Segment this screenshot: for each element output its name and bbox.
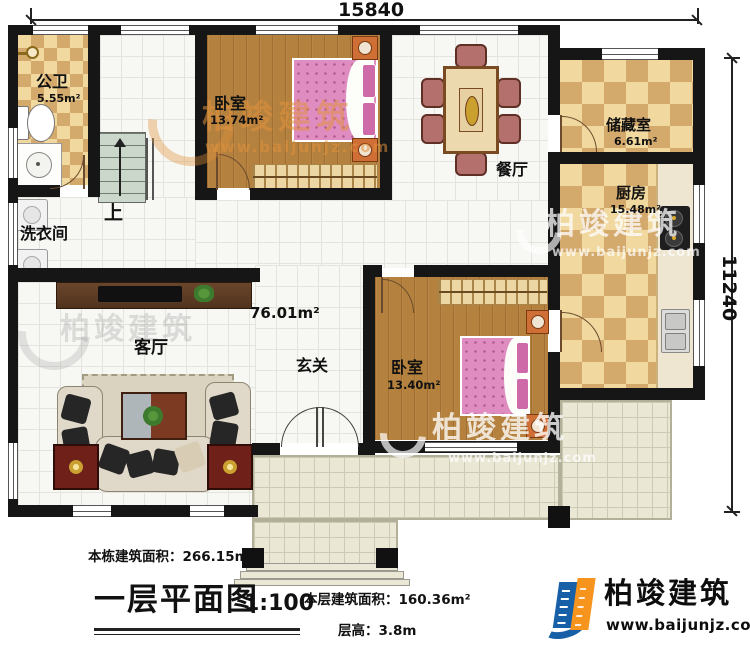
stair-handrail — [146, 138, 154, 200]
toilet-icon — [27, 104, 55, 142]
kitchen-label: 厨房 — [616, 186, 646, 201]
bedroom2-area: 13.40m² — [387, 380, 440, 392]
bedroom2-nightstand-1 — [526, 310, 549, 334]
dimension-ext — [697, 8, 699, 24]
wall-living-north — [8, 268, 260, 282]
side-table-medallion — [223, 460, 237, 474]
title-underline-thick — [94, 628, 300, 631]
floor-area-label: 本层建筑面积：160.36m² — [304, 594, 471, 608]
brand-logo-icon — [536, 576, 600, 642]
window-laundry-left — [8, 203, 18, 265]
wall-foyer-bottom-a — [252, 443, 280, 455]
storage-area: 6.61m² — [614, 136, 657, 147]
sink-basin-2 — [665, 333, 686, 350]
wall-central-upper — [548, 25, 560, 115]
wall-bedroom1-right — [380, 25, 392, 200]
stair-arrow-head — [114, 138, 126, 147]
terrace-column — [548, 506, 570, 528]
dining-chair-top — [455, 44, 487, 68]
bathroom-area: 5.55m² — [37, 93, 80, 104]
wall-foyer-bottom-b — [358, 443, 375, 455]
window-living-bottom-2 — [190, 505, 224, 517]
dining-chair-left-1 — [421, 78, 445, 108]
window-bedroom1-top — [256, 25, 338, 35]
watermark-url: www.baijunjz.com — [552, 246, 701, 259]
dining-chair-right-2 — [497, 114, 521, 144]
watermark-url: www.baijunjz.com — [205, 140, 390, 155]
wall-bedroom2-top-b — [414, 265, 560, 277]
watermark-url: www.baijunjz.com — [448, 452, 597, 465]
window-living-bottom-1 — [73, 505, 111, 517]
stairs-up-label: 上 — [104, 204, 123, 223]
bedroom1-label: 卧室 — [214, 96, 246, 112]
porch-step-2 — [240, 571, 404, 579]
kitchen-counter — [656, 164, 693, 388]
dimension-ext — [724, 511, 740, 513]
floor-plan-title: 一层平面图 — [94, 585, 259, 616]
foyer-label: 玄关 — [296, 358, 328, 374]
window-living-left — [8, 443, 18, 499]
shower-head-icon — [26, 46, 39, 59]
wall-bedroom1-bottom-a — [195, 188, 217, 200]
dimension-ext — [724, 57, 740, 59]
bedroom1-area: 13.74m² — [210, 115, 263, 127]
tv-icon — [98, 286, 182, 302]
dining-centerpiece — [465, 96, 479, 126]
porch-column-right — [376, 548, 398, 568]
kitchen-area: 15.48m² — [610, 204, 661, 215]
dining-chair-bottom — [455, 152, 487, 176]
brand-website: www.baijunjz.com — [606, 618, 750, 633]
wall-bedroom2-left — [363, 265, 375, 452]
hall-area-label: 76.01m² — [250, 306, 320, 321]
floor-plan-canvas: 柏竣建筑 www.baijunjz.com 柏竣建筑 www.baijunjz.… — [0, 0, 750, 646]
bedroom2-closet — [438, 279, 548, 305]
floor-height-label: 层高：3.8m — [338, 625, 416, 639]
window-kitchen-right-2 — [693, 300, 705, 366]
bedroom2-pillow-1 — [516, 342, 529, 374]
entry-door-leaf-left — [316, 407, 318, 447]
dimension-top-line — [30, 19, 698, 21]
porch-step-3 — [234, 579, 410, 586]
bedroom1-pillow-2 — [362, 102, 376, 136]
bathroom-label: 公卫 — [36, 74, 68, 90]
window-hall-top — [121, 25, 189, 35]
living-label: 客厅 — [134, 340, 168, 357]
corridor-floor — [195, 200, 548, 268]
brand-name: 柏竣建筑 — [604, 579, 732, 608]
bedroom2-pillow-2 — [516, 378, 529, 410]
stair-arrow-line — [119, 146, 121, 196]
wall-kitchen-bottom — [553, 388, 705, 400]
watermark-text: 柏竣建筑 — [60, 315, 196, 345]
sink-basin-1 — [665, 313, 686, 330]
title-underline-thin — [94, 634, 300, 635]
dining-chair-left-2 — [421, 114, 445, 144]
entry-door-leaf-right — [322, 407, 324, 447]
watermark-text: 柏竣建筑 — [432, 414, 568, 444]
dimension-top-label: 15840 — [338, 1, 404, 20]
bedroom1-pillow-1 — [362, 64, 376, 98]
wall-storage-kitchen — [560, 152, 693, 164]
side-table-medallion — [69, 460, 83, 474]
washer-1-door — [23, 206, 41, 224]
storage-label: 储藏室 — [606, 118, 651, 133]
sink-drain — [36, 162, 40, 166]
dimension-right-label: 11240 — [719, 255, 738, 321]
building-total-area: 本栋建筑面积：266.15m² — [88, 551, 255, 565]
window-dining-top — [420, 25, 518, 35]
dining-label: 餐厅 — [496, 162, 528, 178]
window-bathroom-top — [33, 25, 88, 35]
plant-icon — [194, 285, 214, 302]
window-bathroom-left — [8, 128, 18, 178]
bedroom1-closet — [252, 164, 378, 189]
laundry-label: 洗衣间 — [20, 226, 68, 242]
dining-chair-right-1 — [497, 78, 521, 108]
wall-bathroom-right — [88, 25, 100, 197]
coffee-table-plant-icon — [143, 406, 163, 426]
window-kitchen-right-1 — [693, 185, 705, 243]
window-storage-top — [602, 48, 658, 60]
bedroom2-label: 卧室 — [391, 360, 423, 376]
dimension-ext — [30, 8, 32, 24]
bedroom1-nightstand-1 — [352, 36, 378, 60]
wall-bedroom1-bottom-b — [250, 188, 392, 200]
